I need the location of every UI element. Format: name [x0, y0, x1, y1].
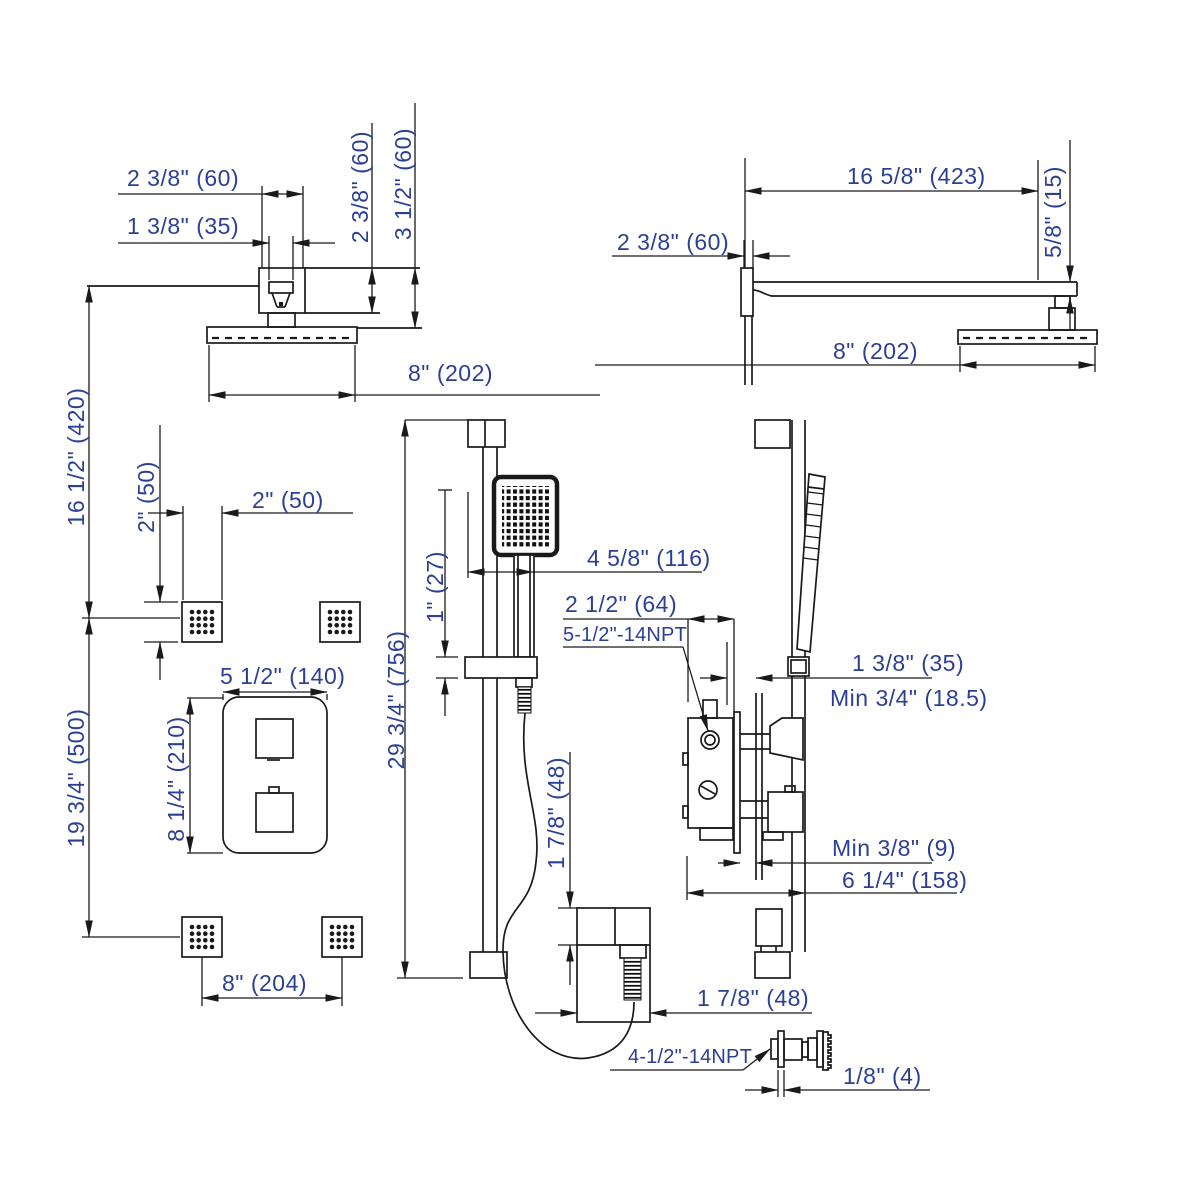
dim-label: 8" (204) [222, 970, 307, 996]
dim-label: 5 1/2" (140) [220, 663, 345, 689]
valve-knob [256, 793, 293, 832]
valve-knob [256, 719, 293, 758]
body-jet [182, 602, 222, 642]
trim-plate-side [734, 712, 740, 853]
dim-label: 8 1/4" (210) [163, 716, 189, 841]
valve-trim-front-view: 5 1/2" (140) 8 1/4" (210) [163, 663, 345, 853]
body-jet [182, 917, 222, 957]
dim-label: 1 7/8" (48) [543, 757, 569, 869]
dim-label: 16 1/2" (420) [63, 388, 89, 527]
dim-label: 1/8" (4) [843, 1063, 922, 1089]
jet-spray-face [823, 1032, 831, 1070]
wall-shower-arm-side-view: 16 5/8" (423) 2 3/8" (60) 8" (202) 5/8" … [595, 140, 1097, 385]
valve-trim-plate [223, 697, 327, 853]
dim-label: 8" (202) [833, 338, 918, 364]
valve-knob-side [768, 792, 803, 832]
dim-label: Min 3/8" (9) [832, 835, 956, 861]
body-jet [320, 602, 360, 642]
dim-label: 8" (202) [408, 360, 493, 386]
slide-bar-holder [465, 657, 537, 678]
dim-label: 29 3/4" (756) [383, 631, 409, 770]
shower-system-dimension-drawing: 2 3/8" (60) 1 3/8" (35) 8" (202) 2 3/8" … [0, 0, 1200, 1200]
body-jet-side [756, 909, 782, 946]
dim-label: 3 1/2" (60) [390, 128, 416, 240]
hand-shower-handle [514, 555, 534, 657]
body-jet-side-detail: 4-1/2"-14NPT 1/8" (4) [610, 1031, 930, 1097]
thread-spec-label: 4-1/2"-14NPT [628, 1046, 752, 1068]
dim-label: 1 3/8" (35) [127, 213, 239, 239]
jet-wall-flange [778, 1031, 784, 1067]
thread-spec-label: 5-1/2"-14NPT [563, 624, 687, 646]
dim-label: Min 3/4" (18.5) [830, 685, 988, 711]
dim-label: 2 3/8" (60) [347, 131, 373, 243]
dim-label: 2" (50) [252, 487, 324, 513]
technical-drawing-canvas: 2 3/8" (60) 1 3/8" (35) 8" (202) 2 3/8" … [0, 0, 1200, 1200]
valve-knob-side [770, 718, 803, 760]
dim-label: 4 5/8" (116) [587, 545, 711, 571]
dim-label: 19 3/4" (500) [63, 709, 89, 848]
rain-shower-head [207, 327, 357, 343]
wall-layout-body-jets: 2" (50) 8" (204) 16 1/2" (420) 19 3/4" (… [63, 286, 362, 1006]
dim-label: 1 7/8" (48) [697, 985, 809, 1011]
valve-side-view: 2 1/2" (64) 5-1/2"-14NPT 1 3/8" (35) Min… [563, 591, 988, 880]
valve-port [701, 731, 719, 749]
dim-label: 1" (27) [422, 551, 448, 623]
dim-label: 6 1/4" (158) [842, 867, 967, 893]
dim-label: 2 3/8" (60) [617, 229, 729, 255]
dim-label: 2" (50) [133, 461, 159, 533]
dim-label: 5/8" (15) [1040, 166, 1066, 258]
wall-flange [741, 268, 753, 316]
slide-bar-front-view: 4 5/8" (116) 1 7/8" (48) 29 3/4" (756) 1… [383, 420, 812, 1058]
dim-label: 2 3/8" (60) [127, 165, 239, 191]
ceiling-shower-head-front-view: 2 3/8" (60) 1 3/8" (35) 8" (202) 2 3/8" … [87, 103, 600, 402]
dim-label: 16 5/8" (423) [847, 163, 986, 189]
body-jet [322, 917, 362, 957]
dim-label: 2 1/2" (64) [565, 591, 677, 617]
dim-label: 1 3/8" (35) [852, 650, 964, 676]
hand-shower-side [797, 474, 825, 652]
